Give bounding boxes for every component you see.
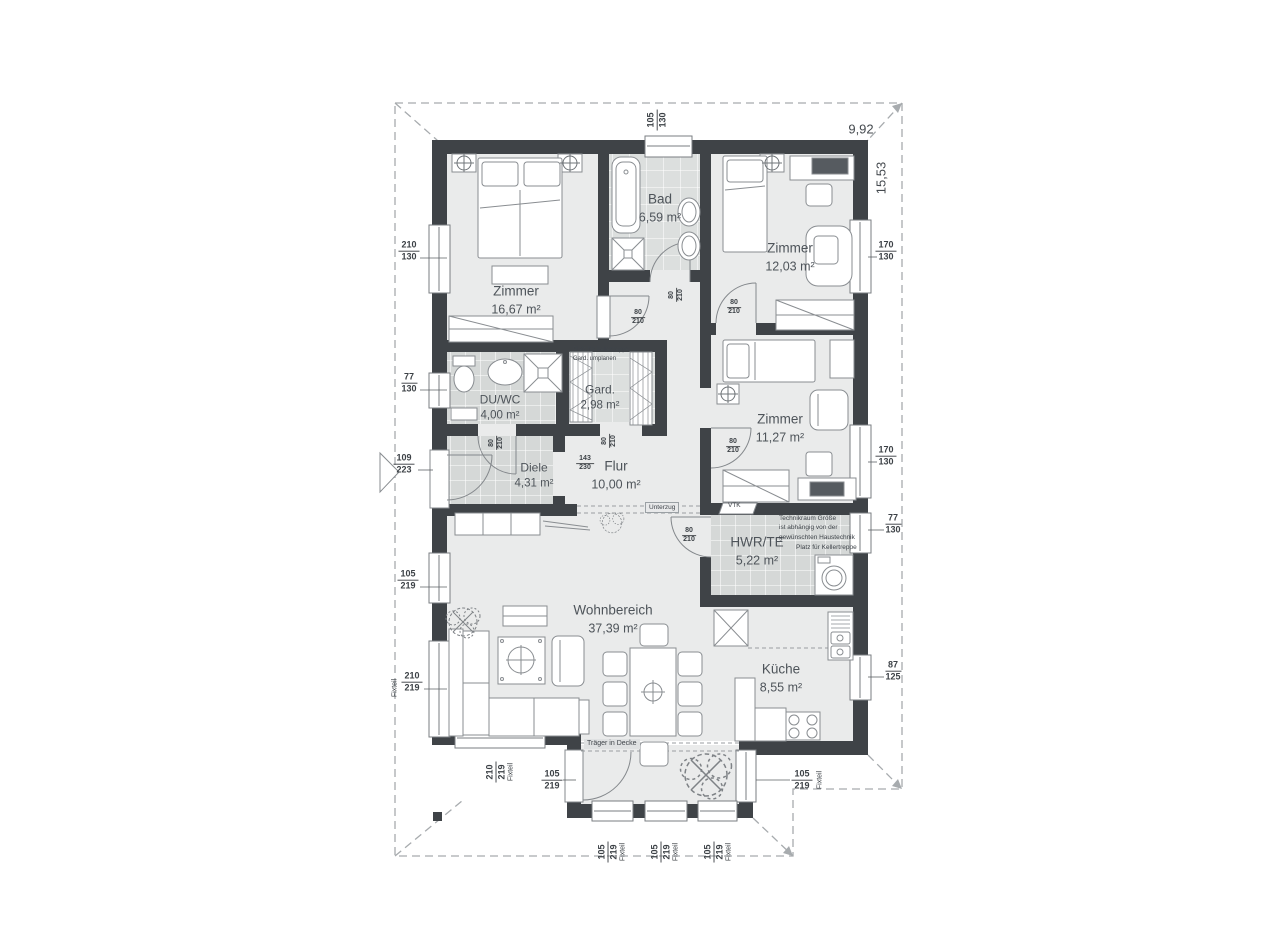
window-bay-2: [645, 801, 687, 821]
keller-note: Platz für Kellertreppe: [796, 543, 857, 552]
wardrobe-nw: [449, 316, 553, 342]
floorplan-canvas: Zimmer 16,67 m² Bad 6,59 m² Zimmer 12,03…: [0, 0, 1280, 950]
kitchen-peninsula: [735, 678, 755, 741]
dim-door-zimmer-ne: 80210: [725, 299, 743, 317]
dim-door-zimmer-e: 80210: [724, 438, 742, 456]
dim-door-gard: 80210: [601, 432, 619, 450]
kitchen-counter-bottom: [753, 708, 786, 741]
fridge: [714, 610, 748, 646]
washing-machine: [815, 555, 853, 595]
dim-entry-door: 109223: [393, 453, 414, 476]
window-top-bad: [645, 136, 692, 157]
dim-right-kueche: 87125: [882, 660, 903, 683]
technik-note: Technikraum Größe ist abhängig von der g…: [779, 514, 855, 542]
double-bed: [478, 158, 562, 258]
dim-left-zimmer-nw: 210130: [398, 240, 419, 263]
dim-bay-door: 105219: [541, 769, 562, 792]
overall-height-label: 15,53: [874, 162, 889, 195]
dim-bay-1: 105219 Fixteil: [597, 841, 628, 862]
bed-e: [723, 340, 815, 382]
dim-bay-3: 105219 Fixteil: [703, 841, 734, 862]
single-bed-ne: [723, 156, 767, 252]
shower-duwc: [524, 354, 562, 392]
tv-bench: [503, 606, 547, 626]
window-left-zimmer-nw: [429, 225, 450, 293]
washbasin-duwc: [488, 359, 522, 385]
armchair-e: [810, 390, 848, 430]
dim-right-hwr: 77130: [882, 513, 903, 536]
window-bay-3: [698, 801, 737, 821]
dim-bay-2: 105219 Fixteil: [650, 841, 681, 862]
stove: [786, 712, 820, 740]
dim-left-duwc: 77130: [398, 372, 419, 395]
chair-e: [806, 452, 832, 476]
window-right-kueche: [850, 655, 871, 700]
shower: [612, 238, 644, 270]
wardrobe-e: [723, 470, 789, 502]
unterzug-label: Unterzug: [645, 502, 679, 513]
gard-note: Platz für Kellertreppe Gard. umplanen: [573, 346, 629, 364]
fixteil-note-left: Fixteil: [392, 679, 399, 697]
dim-left-wohn-fix: 210219: [401, 671, 422, 694]
window-bay-right: [736, 750, 756, 802]
desk-e: [798, 478, 856, 500]
dim-bay-right: 105219: [791, 769, 812, 792]
bed-bench: [492, 266, 548, 284]
shelf-e: [830, 340, 854, 378]
toilet: [453, 356, 475, 392]
coffee-table: [498, 637, 545, 684]
window-bay-1: [592, 801, 633, 821]
dim-door-duwc: 80210: [488, 434, 506, 452]
dim-bottom-wohn-fix: 210219 Fixteil: [485, 761, 516, 782]
gard-rack-right: [630, 352, 652, 425]
armchair-wohn: [552, 636, 584, 686]
kitchen-sink: [828, 612, 853, 660]
floorplan-drawing: [0, 0, 1280, 950]
dim-door-zimmer-nw: 80210: [629, 309, 647, 327]
window-left-duwc: [429, 373, 450, 408]
bathtub: [612, 157, 640, 233]
dim-opening-flur: 143230: [576, 455, 594, 473]
dim-left-wohn: 105219: [397, 569, 418, 592]
overall-width-label: 9,92: [848, 122, 873, 137]
dim-top-bad: 105130: [646, 109, 669, 130]
dim-door-hwr: 80210: [680, 527, 698, 545]
fixteil-note-bay-right: Fixteil: [817, 771, 824, 789]
window-right-zimmer-ne: [850, 220, 871, 293]
wardrobe-ne: [776, 300, 854, 330]
traeger-label: Träger in Decke: [584, 739, 640, 749]
dim-door-bad: 80210: [668, 286, 686, 304]
window-left-wohn: [429, 553, 450, 603]
vtk-label: VTK: [728, 501, 741, 510]
armchair-ne: [806, 226, 852, 286]
dim-right-zimmer-ne: 170130: [875, 240, 896, 263]
dim-right-zimmer-e: 170130: [875, 445, 896, 468]
shelf-duwc: [451, 408, 477, 420]
